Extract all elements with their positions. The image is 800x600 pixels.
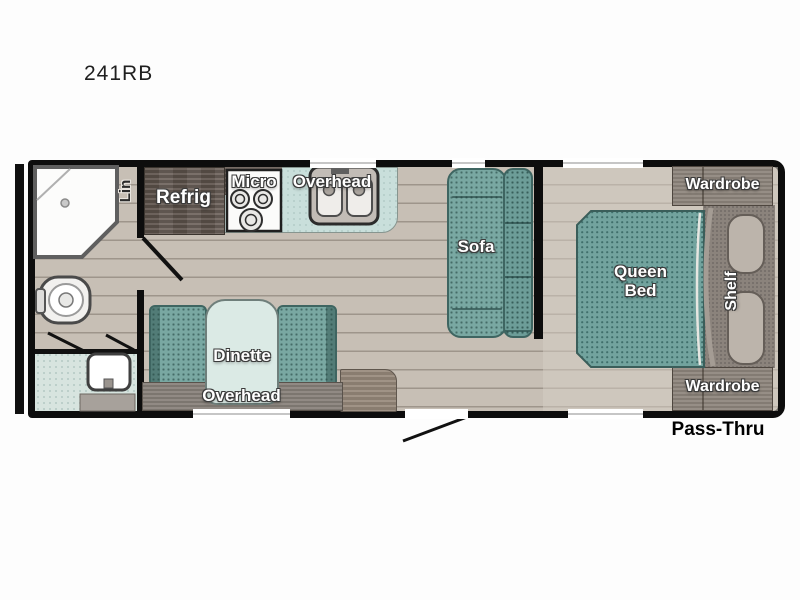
queen-bed-label: Queen Bed [577,262,704,300]
sofa-label: Sofa [447,238,505,256]
dinette-label: Dinette [205,347,279,365]
refrigerator-label: Refrig [144,188,223,208]
bathroom-sink-floor [35,352,137,411]
sofa-backrest [503,168,533,338]
sofa-armrest-line [452,196,502,198]
kitchen-overhead-label: Overhead [283,173,381,191]
window [310,158,376,168]
entry-step-cabinet [340,369,397,412]
shelf-label: Shelf [724,261,744,321]
entry-door-opening [405,409,468,419]
pass-thru-label: Pass-Thru [660,420,776,440]
microwave-label: Micro [224,173,284,191]
queen-bed-label-line2: Bed [624,281,656,300]
window [452,158,485,168]
window [193,409,290,419]
wardrobe-rear-label: Wardrobe [672,177,773,194]
dinette-bench-left [149,305,207,387]
queen-bed-label-line1: Queen [614,262,667,281]
rear-bumper [15,164,24,414]
dinette-bench-right [277,305,337,387]
wardrobe-front-label: Wardrobe [672,379,773,396]
floorplan-model-title: 241RB [84,62,153,86]
linen-closet-label: Lin [118,174,136,208]
bench-backrest [151,307,160,385]
entry-door-swing [403,417,467,441]
sofa-armrest-line [452,308,502,310]
bench-backrest [326,307,335,385]
window [568,409,643,419]
window [563,158,643,168]
dinette-overhead-label: Overhead [142,387,341,405]
bathroom-wall-upper [137,161,144,238]
sofa-partition-wall [534,161,543,339]
